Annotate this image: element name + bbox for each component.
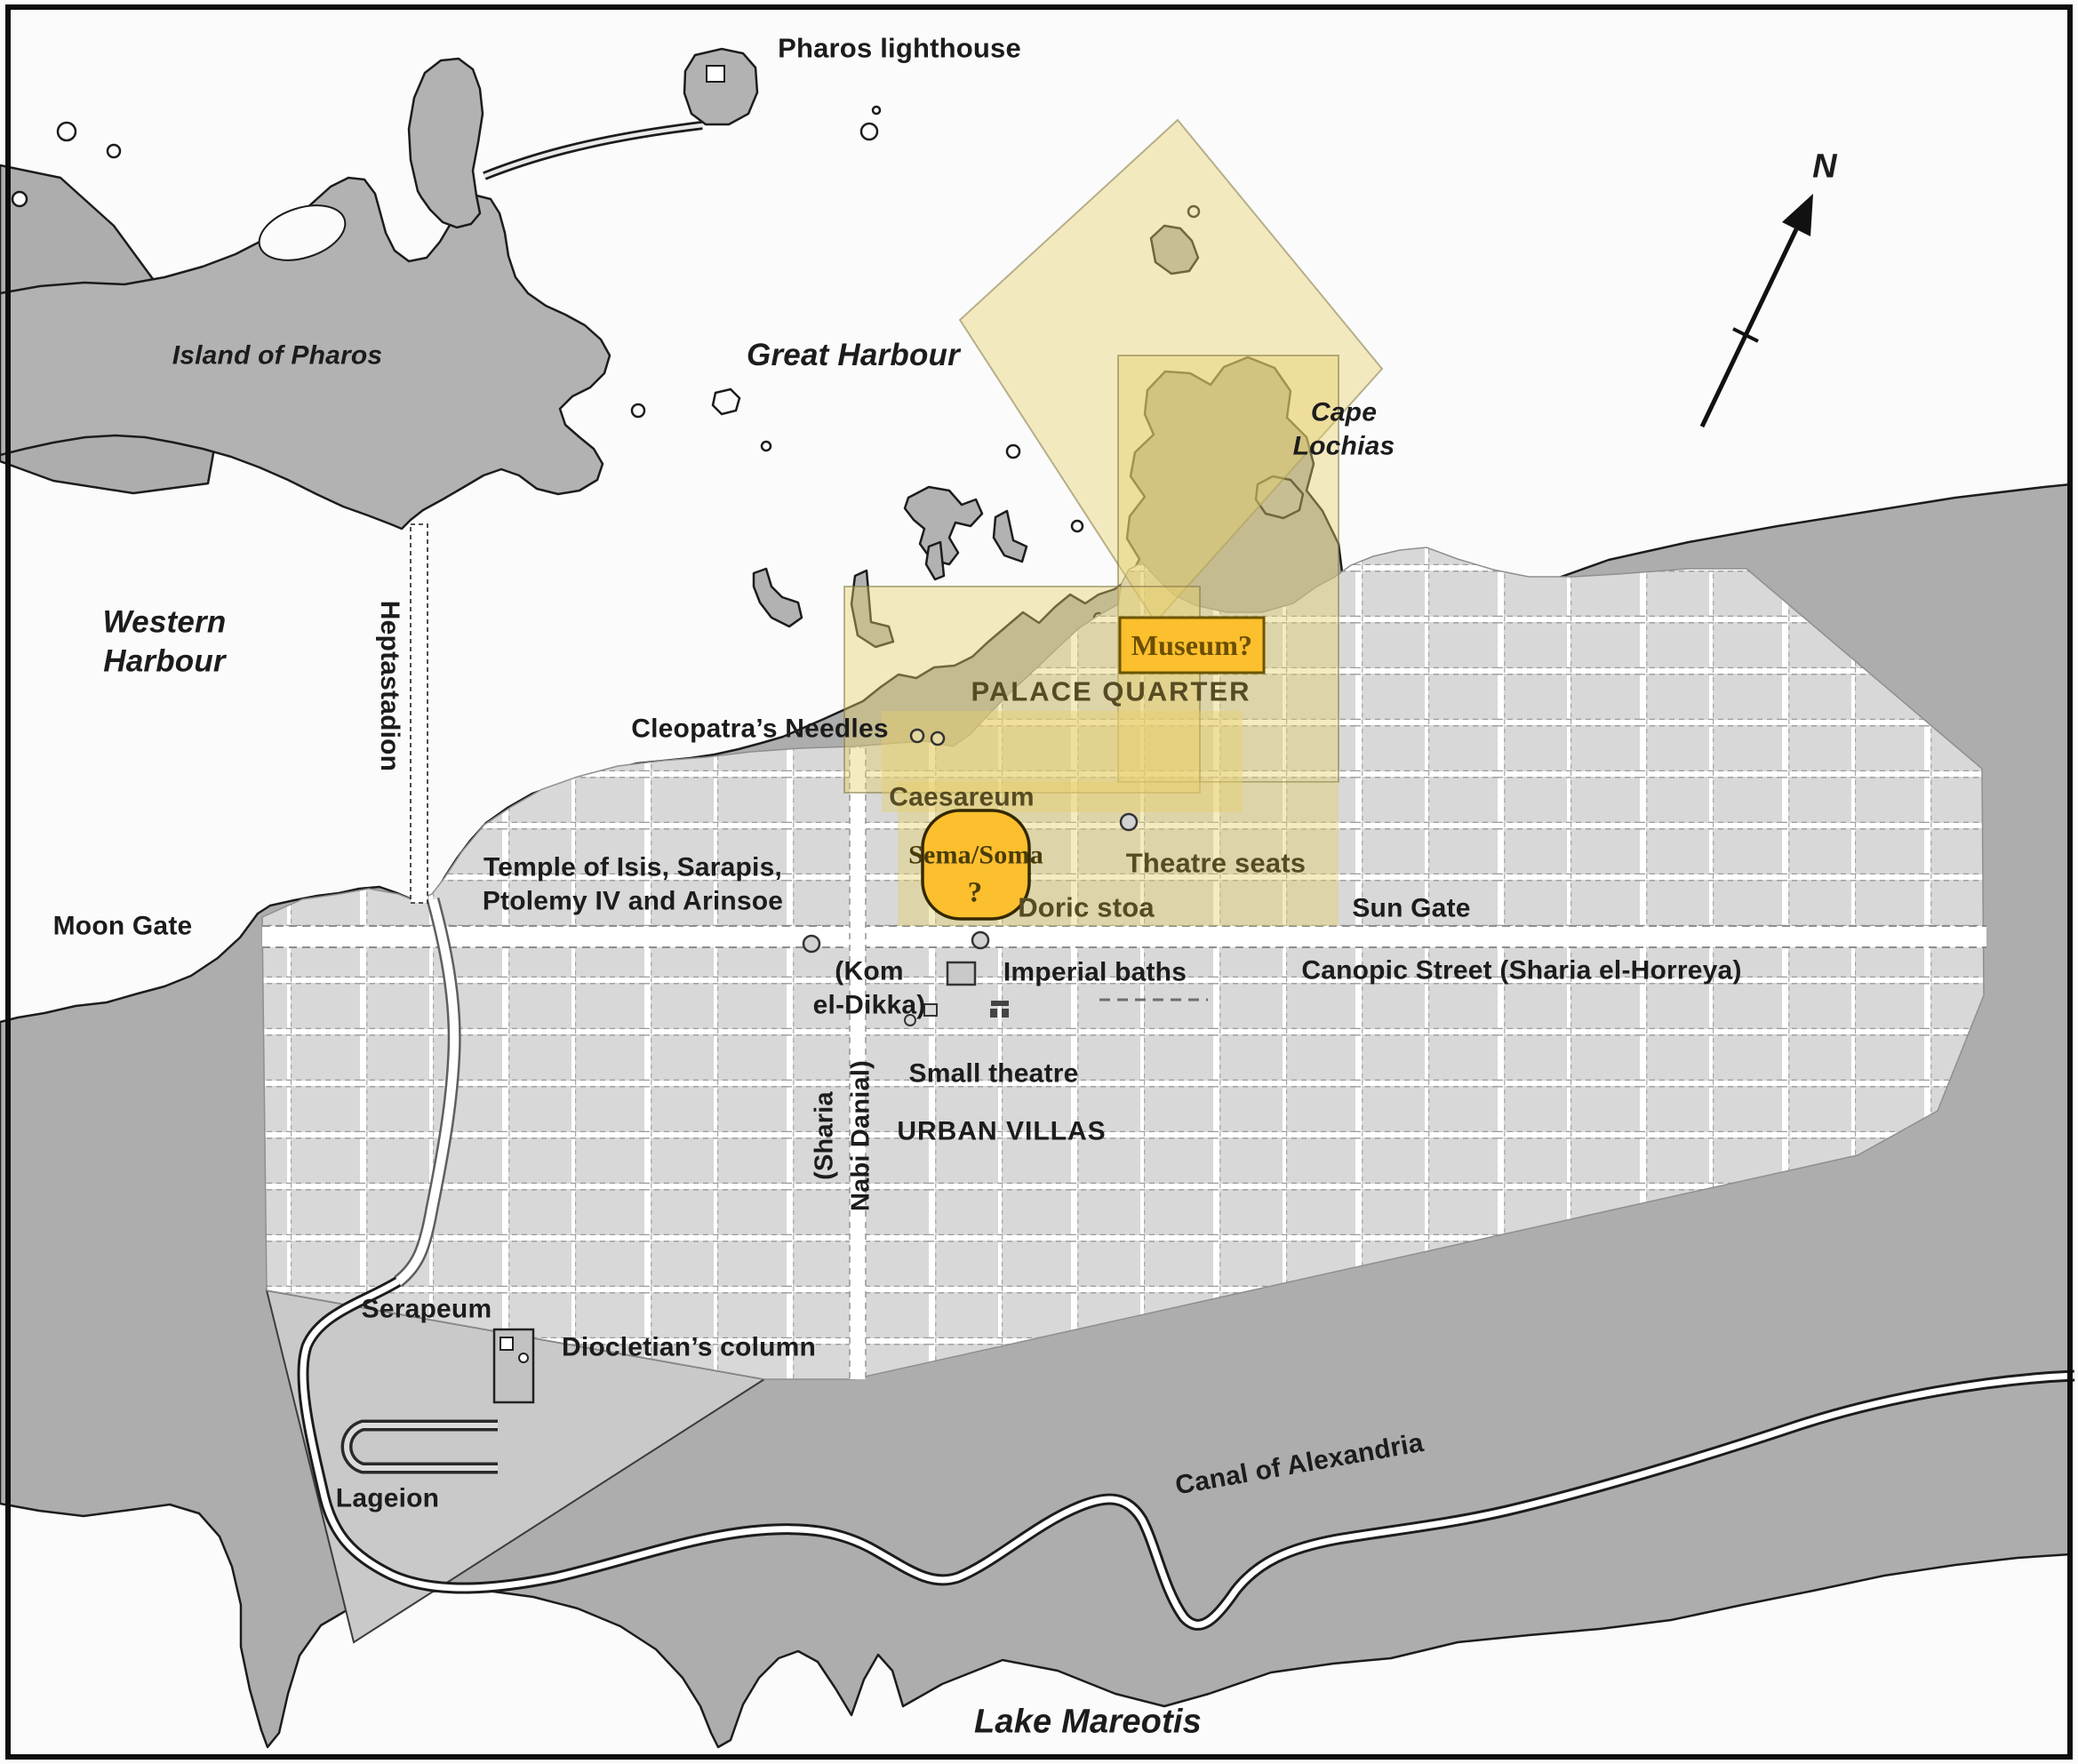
label-theatre-seats: Theatre seats: [1126, 847, 1306, 882]
map-canvas: [0, 0, 2078, 1764]
diocletian-column-icon: [519, 1353, 528, 1362]
label-lageion: Lageion: [336, 1481, 439, 1515]
label-doric-stoa: Doric stoa: [1018, 891, 1155, 926]
label-heptastadion: Heptastadion: [372, 601, 406, 771]
label-sema-soma: Sema/Soma: [908, 838, 1043, 872]
label-pharos-lighthouse: Pharos lighthouse: [778, 32, 1021, 67]
imperial-baths-marker: [972, 932, 988, 948]
label-great-harbour: Great Harbour: [747, 336, 960, 375]
label-moon-gate: Moon Gate: [53, 909, 193, 943]
label-sun-gate: Sun Gate: [1352, 891, 1470, 925]
label-palace-quarter: PALACE QUARTER: [971, 675, 1251, 710]
label-kom-el-dikka: (Kom el-Dikka): [813, 955, 926, 1022]
heptastadion-causeway: [411, 524, 428, 903]
theatre-marker: [1121, 814, 1137, 830]
label-cleopatras-needles: Cleopatra’s Needles: [631, 712, 888, 746]
lighthouse-islet: [684, 49, 757, 124]
serapeum-temple-icon: [500, 1337, 513, 1350]
cleopatra-needle-1: [911, 730, 923, 742]
canopic-street: [262, 926, 1986, 947]
alexandria-map: Pharos lighthouse N Island of Pharos Gre…: [0, 0, 2078, 1764]
label-imperial-baths: Imperial baths: [1003, 955, 1187, 989]
label-lake-mareotis: Lake Mareotis: [974, 1701, 1202, 1744]
small-building-icon: [924, 1004, 937, 1016]
label-cape-lochias: Cape Lochias: [1293, 396, 1395, 463]
label-island-of-pharos: Island of Pharos: [172, 339, 383, 372]
label-small-theatre: Small theatre: [908, 1057, 1078, 1090]
label-temple-of-isis: Temple of Isis, Sarapis, Ptolemy IV and …: [483, 851, 783, 918]
label-sharia-nabi-danial: (Sharia Nabi Danial): [806, 1060, 878, 1211]
label-diocletians-column: Diocletian’s column: [562, 1330, 816, 1364]
cleopatra-needle-2: [931, 732, 944, 745]
label-museum: Museum?: [1131, 627, 1253, 663]
label-canopic-street: Canopic Street (Sharia el-Horreya): [1301, 954, 1741, 987]
lighthouse-icon: [707, 66, 724, 82]
label-urban-villas: URBAN VILLAS: [897, 1114, 1106, 1148]
label-serapeum: Serapeum: [362, 1292, 492, 1326]
label-sema-soma-query: ?: [968, 874, 983, 911]
imperial-baths-icon: [947, 962, 975, 985]
label-caesareum: Caesareum: [889, 780, 1035, 814]
kom-el-dikka-marker: [803, 936, 819, 952]
label-western-harbour: Western Harbour: [103, 603, 227, 681]
label-north: N: [1812, 146, 1837, 188]
